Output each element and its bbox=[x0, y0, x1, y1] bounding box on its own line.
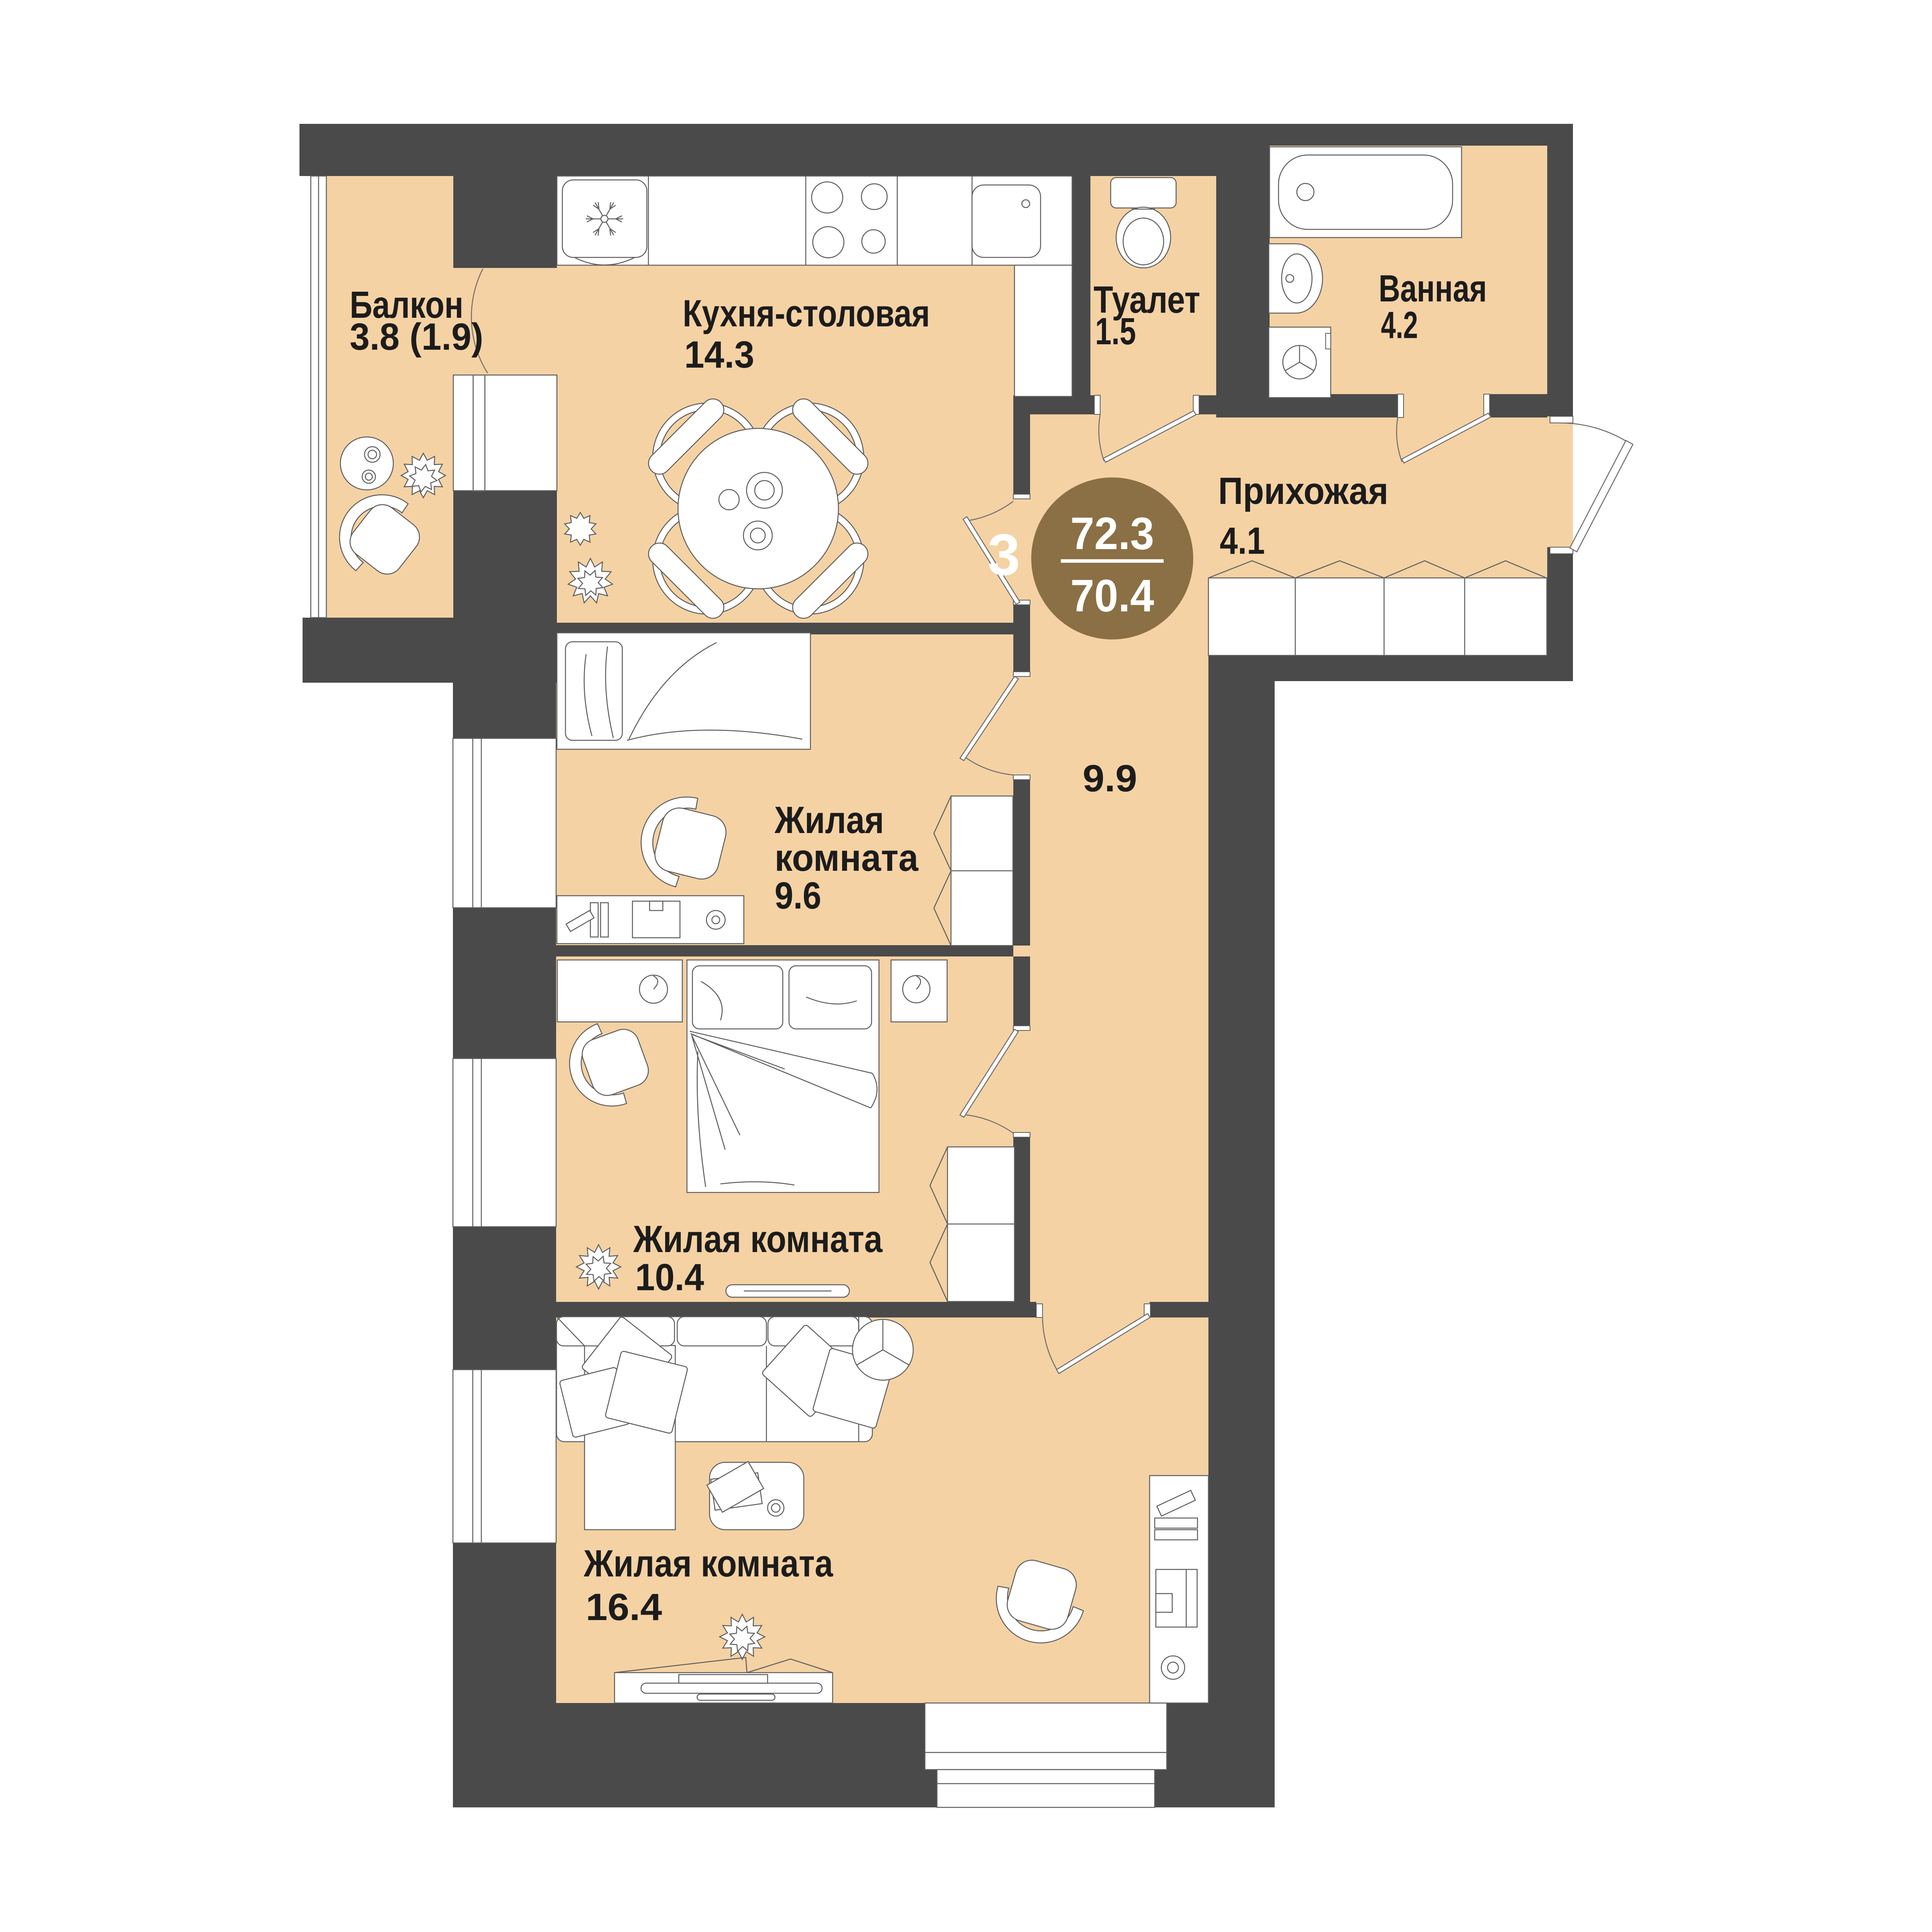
svg-text:14.3: 14.3 bbox=[684, 333, 754, 376]
svg-text:Ванная: Ванная bbox=[1379, 267, 1487, 310]
svg-text:10.4: 10.4 bbox=[635, 1256, 704, 1298]
svg-text:3.8 (1.9): 3.8 (1.9) bbox=[350, 315, 483, 358]
svg-text:16.4: 16.4 bbox=[586, 1586, 662, 1628]
svg-text:Прихожая: Прихожая bbox=[1218, 470, 1388, 512]
svg-text:1.5: 1.5 bbox=[1095, 310, 1136, 352]
svg-text:3: 3 bbox=[988, 522, 1020, 587]
svg-text:72.3: 72.3 bbox=[1071, 508, 1154, 559]
svg-text:70.4: 70.4 bbox=[1071, 570, 1154, 621]
svg-text:4.2: 4.2 bbox=[1381, 304, 1418, 346]
svg-text:Кухня-столовая: Кухня-столовая bbox=[683, 292, 930, 335]
svg-text:Жилая комната: Жилая комната bbox=[633, 1218, 883, 1260]
svg-text:Жилая: Жилая bbox=[774, 799, 884, 841]
svg-text:9.9: 9.9 bbox=[1083, 757, 1137, 800]
svg-text:4.1: 4.1 bbox=[1220, 520, 1265, 562]
svg-text:9.6: 9.6 bbox=[775, 874, 821, 917]
svg-text:Жилая комната: Жилая комната bbox=[583, 1542, 833, 1585]
svg-text:комната: комната bbox=[775, 837, 919, 879]
